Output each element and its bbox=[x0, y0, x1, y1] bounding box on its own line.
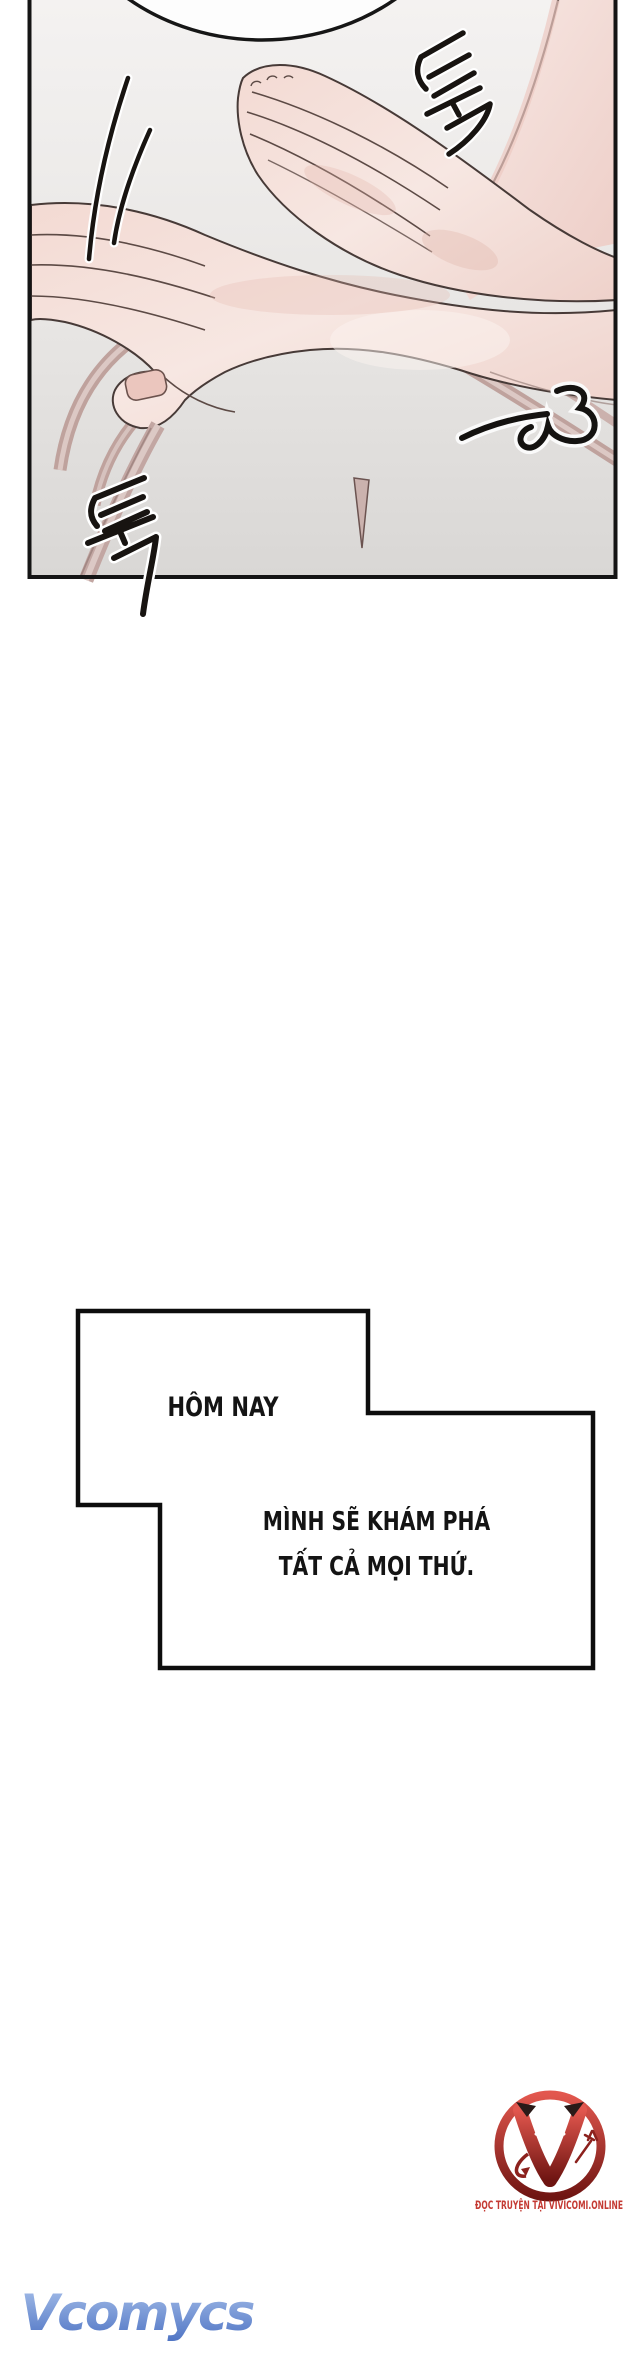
caption-line-3: TẤT CẢ MỌI THỨ. bbox=[208, 1545, 546, 1590]
vivicomi-logo: ĐỌC TRUYỆN TẠI VIVICOMI.ONLINE bbox=[475, 2095, 623, 2212]
caption-line-2: MÌNH SẼ KHÁM PHÁ bbox=[208, 1500, 546, 1545]
caption-lines-2-3: MÌNH SẼ KHÁM PHÁ TẤT CẢ MỌI THỨ. bbox=[208, 1500, 546, 1590]
vcomycs-logo: Vcomycs bbox=[21, 2284, 254, 2342]
caption-line-1: HÔM NAY bbox=[110, 1390, 336, 1426]
vivicomi-tagline: ĐỌC TRUYỆN TẠI VIVICOMI.ONLINE bbox=[475, 2197, 623, 2212]
vivicomi-fox-icon bbox=[499, 2095, 601, 2197]
caption-box bbox=[78, 1311, 593, 1668]
page-artwork: ĐỌC TRUYỆN TẠI VIVICOMI.ONLINE Vcomycs bbox=[0, 0, 640, 2360]
webtoon-page: ĐỌC TRUYỆN TẠI VIVICOMI.ONLINE Vcomycs H… bbox=[0, 0, 640, 2360]
